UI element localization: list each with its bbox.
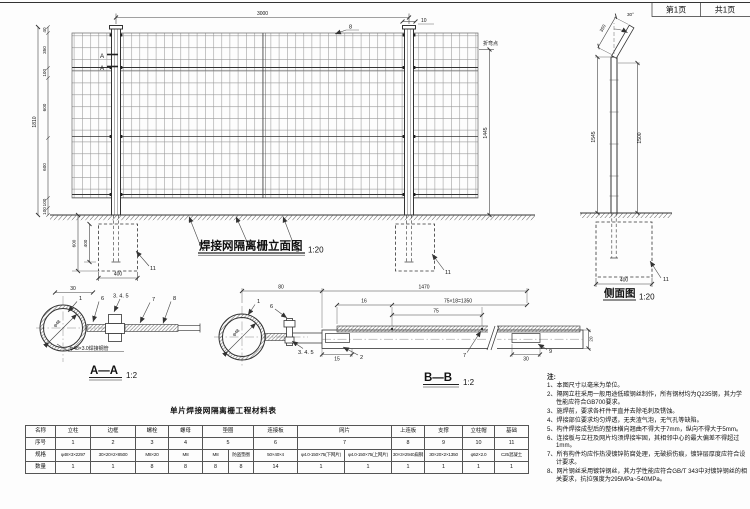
note-item: 5、构件焊接成型后的整体横向翘曲不得大于7mm，纵向不得大于5mm。 <box>547 426 748 434</box>
dim-left: 40 <box>42 27 47 33</box>
dim-left: 100 <box>42 207 47 215</box>
title-block: 第1页 共1页 <box>0 3 750 17</box>
table-cell-no: 8 <box>392 438 425 450</box>
table-cell-spec: 30×20×2×8500 <box>91 450 136 462</box>
callout-bb-1: 1 <box>257 299 260 305</box>
left-foundation <box>99 224 138 271</box>
dim-arm-angle: 30° <box>627 12 634 17</box>
table-cell-name: 螺母 <box>169 426 203 438</box>
right-post-cap <box>403 26 416 30</box>
table-cell-qty: 1 <box>392 462 425 474</box>
callout-bb-7: 7 <box>463 353 466 359</box>
bolt-head <box>109 315 122 324</box>
mesh-panel <box>72 33 478 198</box>
dim-right-height: 1445 <box>483 127 489 138</box>
dim-bb-16: 16 <box>361 299 367 305</box>
dia-label-aa: φ48 <box>52 318 62 328</box>
table-cell-qty: 14 <box>254 462 298 474</box>
table-row-header: 规格 <box>26 450 56 462</box>
dim-left: 100 <box>42 69 47 77</box>
note-item: 1、本图尺寸以毫米为单位。 <box>547 382 748 390</box>
dim-embed-depth: 400 <box>83 239 88 247</box>
table-cell-name: 螺栓 <box>136 426 169 438</box>
table-cell-spec: M8 <box>169 450 203 462</box>
notes-heading: 注: <box>547 371 748 381</box>
material-table-title: 单片焊接网隔离栅工程材料表 <box>170 405 277 416</box>
table-row-header: 名称 <box>26 426 56 438</box>
table-cell-name: 边框 <box>91 426 136 438</box>
table-cell-no: 3 <box>136 438 169 450</box>
table-cell-qty: 1 <box>298 462 345 474</box>
side-view: 30° 350 1545 1500 400 11 侧面图 1:20 <box>580 12 672 302</box>
dim-bb-75: 75 <box>433 309 439 315</box>
callout-bb-6: 6 <box>270 304 273 310</box>
dim-left: 600 <box>42 103 47 111</box>
dim-foundation-depth: 600 <box>72 239 77 247</box>
dim-bb-1470: 1470 <box>418 285 429 291</box>
table-cell-no: 1 <box>56 438 91 450</box>
table-cell-spec: φ4.0-150×75(上网片) <box>345 450 392 462</box>
note-item: 6、连接板与立柱及网片均须焊接牢固，其相邻中心的最大偏差不得超过1mm。 <box>547 435 748 451</box>
elevation-scale: 1:20 <box>308 246 324 255</box>
nut <box>109 334 122 342</box>
right-post <box>405 29 414 215</box>
table-cell-qty: 8 <box>136 462 169 474</box>
note-item: 8、网片钢丝采用镀锌钢丝，其力学性能应符合GB/T 343中对镀锌钢丝的相关要求… <box>547 468 748 484</box>
dim-aa-top: 30 <box>70 286 76 292</box>
section-aa-title: A—A <box>90 365 118 377</box>
callout-top-rail: 8 <box>349 25 352 31</box>
material-table: 名称立柱边框螺栓螺母垫圈连接板网片上连板支撑立柱帽基础序号12345678910… <box>25 425 529 474</box>
table-cell-no: 9 <box>425 438 463 450</box>
callout-side-foundation: 11 <box>663 277 669 283</box>
dim-bb-80: 80 <box>278 285 284 291</box>
table-cell-qty: 8 <box>229 462 254 474</box>
dim-height-right: 1500 <box>637 132 643 143</box>
table-cell-name: 支撑 <box>425 426 463 438</box>
dim-left: 600 <box>42 163 47 171</box>
table-cell-qty: 1 <box>345 462 392 474</box>
section-bb-title: B—B <box>424 372 452 384</box>
table-cell-spec: M8 <box>203 450 229 462</box>
side-post-arm <box>612 25 634 58</box>
table-cell-no: 10 <box>463 438 495 450</box>
table-cell-spec: φ48×3×2297 <box>56 450 91 462</box>
table-cell-spec: C25混凝土 <box>495 450 529 462</box>
callout-aa-345: 3. 4. 5 <box>113 294 129 300</box>
side-view-scale: 1:20 <box>639 293 655 302</box>
table-cell-name: 上连板 <box>392 426 425 438</box>
table-cell-qty: 1 <box>463 462 495 474</box>
table-cell-spec: φ4.0-150×75(下网片) <box>298 450 345 462</box>
table-cell-no: 2 <box>91 438 136 450</box>
elevation-view: 3000 10 8 40 350 100 600 600 100 100 181… <box>32 11 535 281</box>
callout-aa-6: 6 <box>101 296 104 302</box>
table-cell-name: 立柱 <box>56 426 91 438</box>
table-cell-qty: 1 <box>495 462 529 474</box>
table-cell-spec: 50×40×4 <box>254 450 298 462</box>
callout-bb-9: 9 <box>549 349 552 355</box>
table-cell-name: 垫圈 <box>203 426 254 438</box>
side-foundation <box>596 222 652 277</box>
left-post <box>112 29 121 215</box>
dim-span: 3000 <box>257 11 268 17</box>
table-cell-spec: 30×20×2×1350 <box>425 450 463 462</box>
callout-aa-8: 8 <box>173 296 176 302</box>
bend-point-label: 折弯点 <box>483 40 498 47</box>
dim-foundation-width: 400 <box>114 272 123 278</box>
note-item: 4、焊接部位要求均匀焊透，无夹渣气泡，无气孔等缺陷。 <box>547 417 748 425</box>
page-total: 共1页 <box>715 6 735 15</box>
section-bb: φ48 80 1470 16 75×18=1350 75 <box>214 285 594 388</box>
table-cell-spec: 防盗垫圈 <box>229 450 254 462</box>
table-row-header: 序号 <box>26 438 56 450</box>
dim-side-foundation-width: 400 <box>620 278 629 284</box>
note-item: 2、隔网立柱采用一般用途低碳钢丝制作，所有钢材均为Q235钢，其力学性能应符合G… <box>547 391 748 407</box>
table-cell-name: 立柱帽 <box>463 426 495 438</box>
top-flat-bar <box>337 326 580 332</box>
dim-cap: 10 <box>421 18 427 24</box>
nut <box>285 337 294 343</box>
table-row-header: 数量 <box>26 462 56 474</box>
notes-block: 注: 1、本图尺寸以毫米为单位。2、隔网立柱采用一般用途低碳钢丝制作，所有钢材均… <box>547 371 748 485</box>
callout-foundation-right: 11 <box>445 270 451 276</box>
dia-label-bb: φ48 <box>231 327 241 337</box>
table-cell-name: 连接板 <box>254 426 298 438</box>
drawing-sheet: 第1页 共1页 <box>0 0 750 509</box>
table-cell-no: 5 <box>203 438 254 450</box>
table-cell-name: 基础 <box>495 426 529 438</box>
page-number: 第1页 <box>666 5 686 15</box>
dim-left: 100 <box>42 198 47 206</box>
table-cell-spec: M8×20 <box>136 450 169 462</box>
table-cell-qty: 8 <box>169 462 203 474</box>
callout-foundation-left: 11 <box>150 266 156 272</box>
dim-bb-30: 30 <box>523 357 529 363</box>
side-post <box>611 57 617 213</box>
table-cell-qty: 1 <box>425 462 463 474</box>
dim-bb-15: 15 <box>334 357 340 363</box>
table-cell-spec: φ52×2.0 <box>463 450 495 462</box>
elevation-title: 焊接网隔离栅立面图 <box>199 239 303 253</box>
table-cell-no: 11 <box>495 438 529 450</box>
side-view-title: 侧面图 <box>604 287 636 300</box>
dim-total-height: 1810 <box>32 116 38 127</box>
note-item: 7、所有构件均应作热浸镀锌防腐处理，无破损伤痕，镀锌层厚度应符合设计要求。 <box>547 451 748 467</box>
dim-arm-length: 350 <box>599 23 607 33</box>
bolt-head <box>284 321 295 328</box>
callout-bb-2: 2 <box>360 355 363 361</box>
callout-bb-345: 3. 4. 5 <box>298 350 314 356</box>
table-cell-qty: 1 <box>91 462 136 474</box>
callout-aa-7: 7 <box>152 297 155 303</box>
dim-bb-20: 20 <box>589 336 594 342</box>
right-foundation <box>396 224 435 271</box>
dim-bb-wire-spacing: 75×18=1350 <box>444 299 472 305</box>
section-aa: φ48 30 1 6 3. 4. 5 7 8 φ48×3.0焊接钢管 A—A 1… <box>36 286 200 380</box>
table-cell-qty: 8 <box>203 462 229 474</box>
washer-block <box>106 324 125 334</box>
left-post-cap <box>110 26 123 30</box>
table-cell-name: 网片 <box>298 426 392 438</box>
table-cell-no: 4 <box>169 438 203 450</box>
dim-left: 350 <box>42 46 47 54</box>
table-cell-qty: 1 <box>56 462 91 474</box>
section-bb-scale: 1:2 <box>463 378 475 387</box>
pipe-note: φ48×3.0焊接钢管 <box>70 345 109 352</box>
note-item: 3、施焊前，要求各杆件平直并去除毛刺及锈蚀。 <box>547 408 748 416</box>
table-cell-no: 6 <box>254 438 298 450</box>
callout-aa-1: 1 <box>79 296 82 302</box>
dim-height-left: 1545 <box>591 131 597 142</box>
table-cell-spec: 30×3×2940扁钢 <box>392 450 425 462</box>
section-aa-scale: 1:2 <box>126 371 138 380</box>
table-cell-no: 7 <box>298 438 392 450</box>
